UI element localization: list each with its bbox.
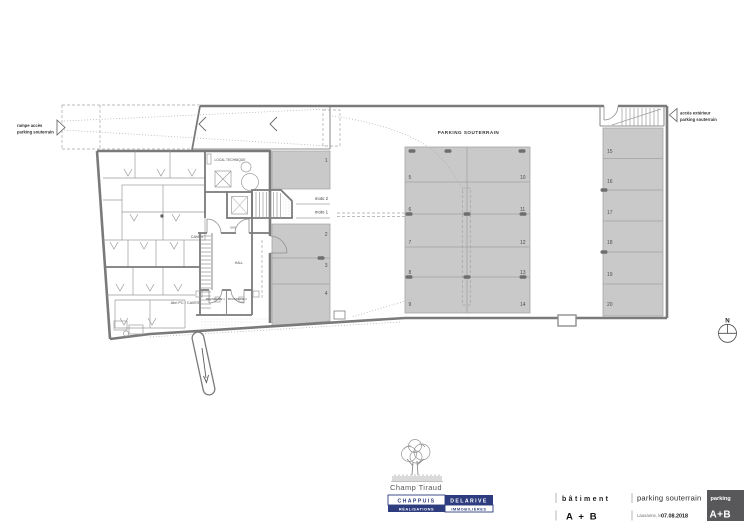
badge-value-label: A+B: [710, 510, 731, 521]
parking-badge: parking A+B: [707, 490, 744, 521]
badge-top-label: parking: [711, 496, 732, 502]
moto2-label: moto 2: [315, 196, 329, 201]
space-4: 4: [325, 291, 328, 297]
moto1-label: moto 1: [315, 210, 329, 215]
brand-delarive: DELARIVE: [450, 499, 487, 505]
north-label: N: [725, 318, 730, 325]
brand-realisations: RÉALISATIONS: [399, 506, 434, 511]
space-15: 15: [607, 149, 613, 155]
space-1: 1: [325, 158, 328, 164]
abri-pc-label: Abri PC / CAVES: [171, 301, 200, 305]
document-place: Lausanne, le: [637, 513, 662, 518]
light-well: [558, 315, 576, 326]
space-16: 16: [607, 179, 613, 185]
elevator: [227, 192, 252, 218]
document-title: parking souterrain: [637, 494, 701, 503]
ramp-label-line2: parking souterrain: [17, 130, 54, 135]
sas-label: SAS: [230, 226, 236, 230]
space-2: 2: [325, 232, 328, 238]
space-17: 17: [607, 210, 613, 216]
exterior-access-arrow-icon: [670, 109, 678, 122]
buanderie2-label: BUANDERIE 2: [228, 297, 247, 301]
exterior-access-line2: parking souterrain: [680, 117, 717, 122]
document-date: 07.08.2018: [661, 514, 688, 520]
space-13: 13: [520, 270, 526, 276]
space-18: 18: [607, 240, 613, 246]
space-12: 12: [520, 240, 526, 246]
ramp-label-line1: rampe accès: [17, 123, 43, 128]
space-8: 8: [409, 270, 412, 276]
brand-immobilieres: IMMOBILIÈRES: [451, 506, 486, 511]
floor-plan-drawing: rampe accès parking souterrain CAVES Abr…: [0, 0, 750, 531]
tree-logo: [391, 440, 443, 482]
space-19: 19: [607, 272, 613, 278]
parking-stall-surfaces: [272, 128, 663, 326]
space-14: 14: [520, 302, 526, 308]
brand-chappuis: CHAPPUIS: [397, 499, 435, 505]
buanderie1-label: BUANDERIE 1: [206, 297, 225, 301]
floor-plan-sheet: rampe accès parking souterrain CAVES Abr…: [0, 0, 750, 531]
caves-room: [103, 151, 205, 267]
brand-logo: CHAPPUIS DELARIVE RÉALISATIONS IMMOBILIÈ…: [388, 495, 493, 512]
stairs-main: [252, 190, 293, 218]
space-20: 20: [607, 302, 613, 308]
local-technique-label: LOCAL TECHNIQUE: [215, 158, 247, 162]
batiment-label: bâtiment: [562, 496, 610, 503]
abri-pc-room: [107, 267, 195, 328]
ramp-arrow-icon: [57, 120, 65, 135]
hall-label: HALL: [235, 261, 244, 265]
project-name: Champ Tiraud: [390, 483, 442, 492]
parking-hall-title: PARKING SOUTERRAIN: [438, 130, 500, 135]
space-5: 5: [409, 175, 412, 181]
stairs-exterior: [600, 106, 664, 126]
caves-label: CAVES: [191, 235, 204, 239]
north-arrow: [719, 324, 737, 342]
column-dot: [160, 214, 163, 217]
space-6: 6: [409, 207, 412, 213]
space-7: 7: [409, 240, 412, 246]
space-10: 10: [520, 175, 526, 181]
space-11: 11: [520, 207, 525, 213]
stair-dotted-zone: [283, 196, 293, 216]
exterior-access-line1: accès extérieur: [680, 111, 711, 116]
space-9: 9: [409, 302, 412, 308]
space-3: 3: [325, 263, 328, 269]
batiment-value: A + B: [566, 512, 598, 523]
